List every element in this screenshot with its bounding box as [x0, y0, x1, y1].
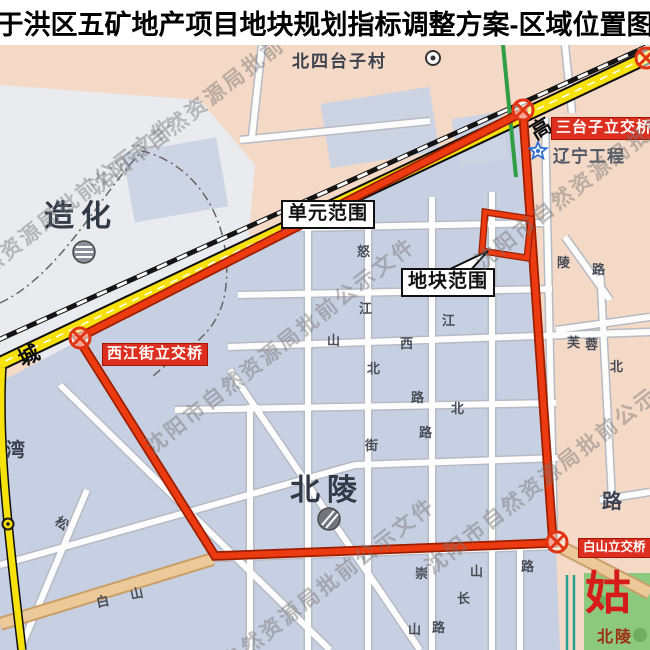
- street-label: 崇: [415, 563, 428, 582]
- street-label: 江: [442, 310, 455, 329]
- street-label: 江: [359, 298, 372, 317]
- street-label: 路: [432, 617, 445, 636]
- street-label: 西: [400, 333, 413, 352]
- baishan-interchange-label: 白山立交桥: [578, 538, 650, 558]
- street-label: 怒: [357, 241, 370, 260]
- park-tree: [633, 628, 647, 642]
- street-label: 陵: [557, 252, 570, 271]
- map: 北四台子村 造化 北陵 辽宁工程 姑 北陵 湾 城 高 路 三台子立交桥 西江街…: [0, 45, 650, 650]
- street-label: 山: [408, 619, 421, 638]
- village-icon-dot: [431, 56, 436, 61]
- road-label-right: 路: [602, 485, 622, 514]
- street-label: 长: [457, 588, 470, 607]
- wan-label: 湾: [6, 435, 25, 462]
- street-label: 路: [521, 556, 534, 575]
- street-label: 路: [419, 422, 432, 441]
- street-label: 北: [610, 356, 623, 375]
- beiling-label: 北陵: [290, 465, 364, 509]
- street-label: 路: [592, 259, 605, 278]
- beiling-park-label: 北陵: [597, 623, 633, 647]
- street-label: 街: [365, 435, 378, 454]
- street-label: 路: [411, 387, 424, 406]
- xijiangjie-interchange-label: 西江街立交桥: [102, 343, 208, 366]
- university-star-dot: [536, 149, 540, 153]
- title-text: 于洪区五矿地产项目地块规划指标调整方案-区域位置图: [0, 3, 650, 42]
- page-title: 于洪区五矿地产项目地块规划指标调整方案-区域位置图: [0, 0, 650, 45]
- road-node-dot: [6, 522, 10, 526]
- santaizi-interchange-label: 三台子立交桥: [551, 117, 650, 140]
- street-label: 山: [327, 330, 340, 349]
- university-label: 辽宁工程: [553, 142, 625, 167]
- village-label: 北四台子村: [292, 47, 387, 72]
- parcel-range-callout: 地块范围: [401, 268, 495, 297]
- gu-label: 姑: [585, 557, 631, 623]
- unit-range-callout: 单元范围: [281, 200, 375, 229]
- street-label: 北: [367, 358, 380, 377]
- zaohua-label: 造化: [44, 191, 118, 235]
- street-label: 蓉: [585, 334, 598, 353]
- landmark-icon: [318, 508, 340, 530]
- street-label: 山: [470, 561, 483, 580]
- street-label: 芙: [567, 332, 580, 351]
- street-label: 北: [451, 398, 464, 417]
- transit-lines: [567, 575, 574, 650]
